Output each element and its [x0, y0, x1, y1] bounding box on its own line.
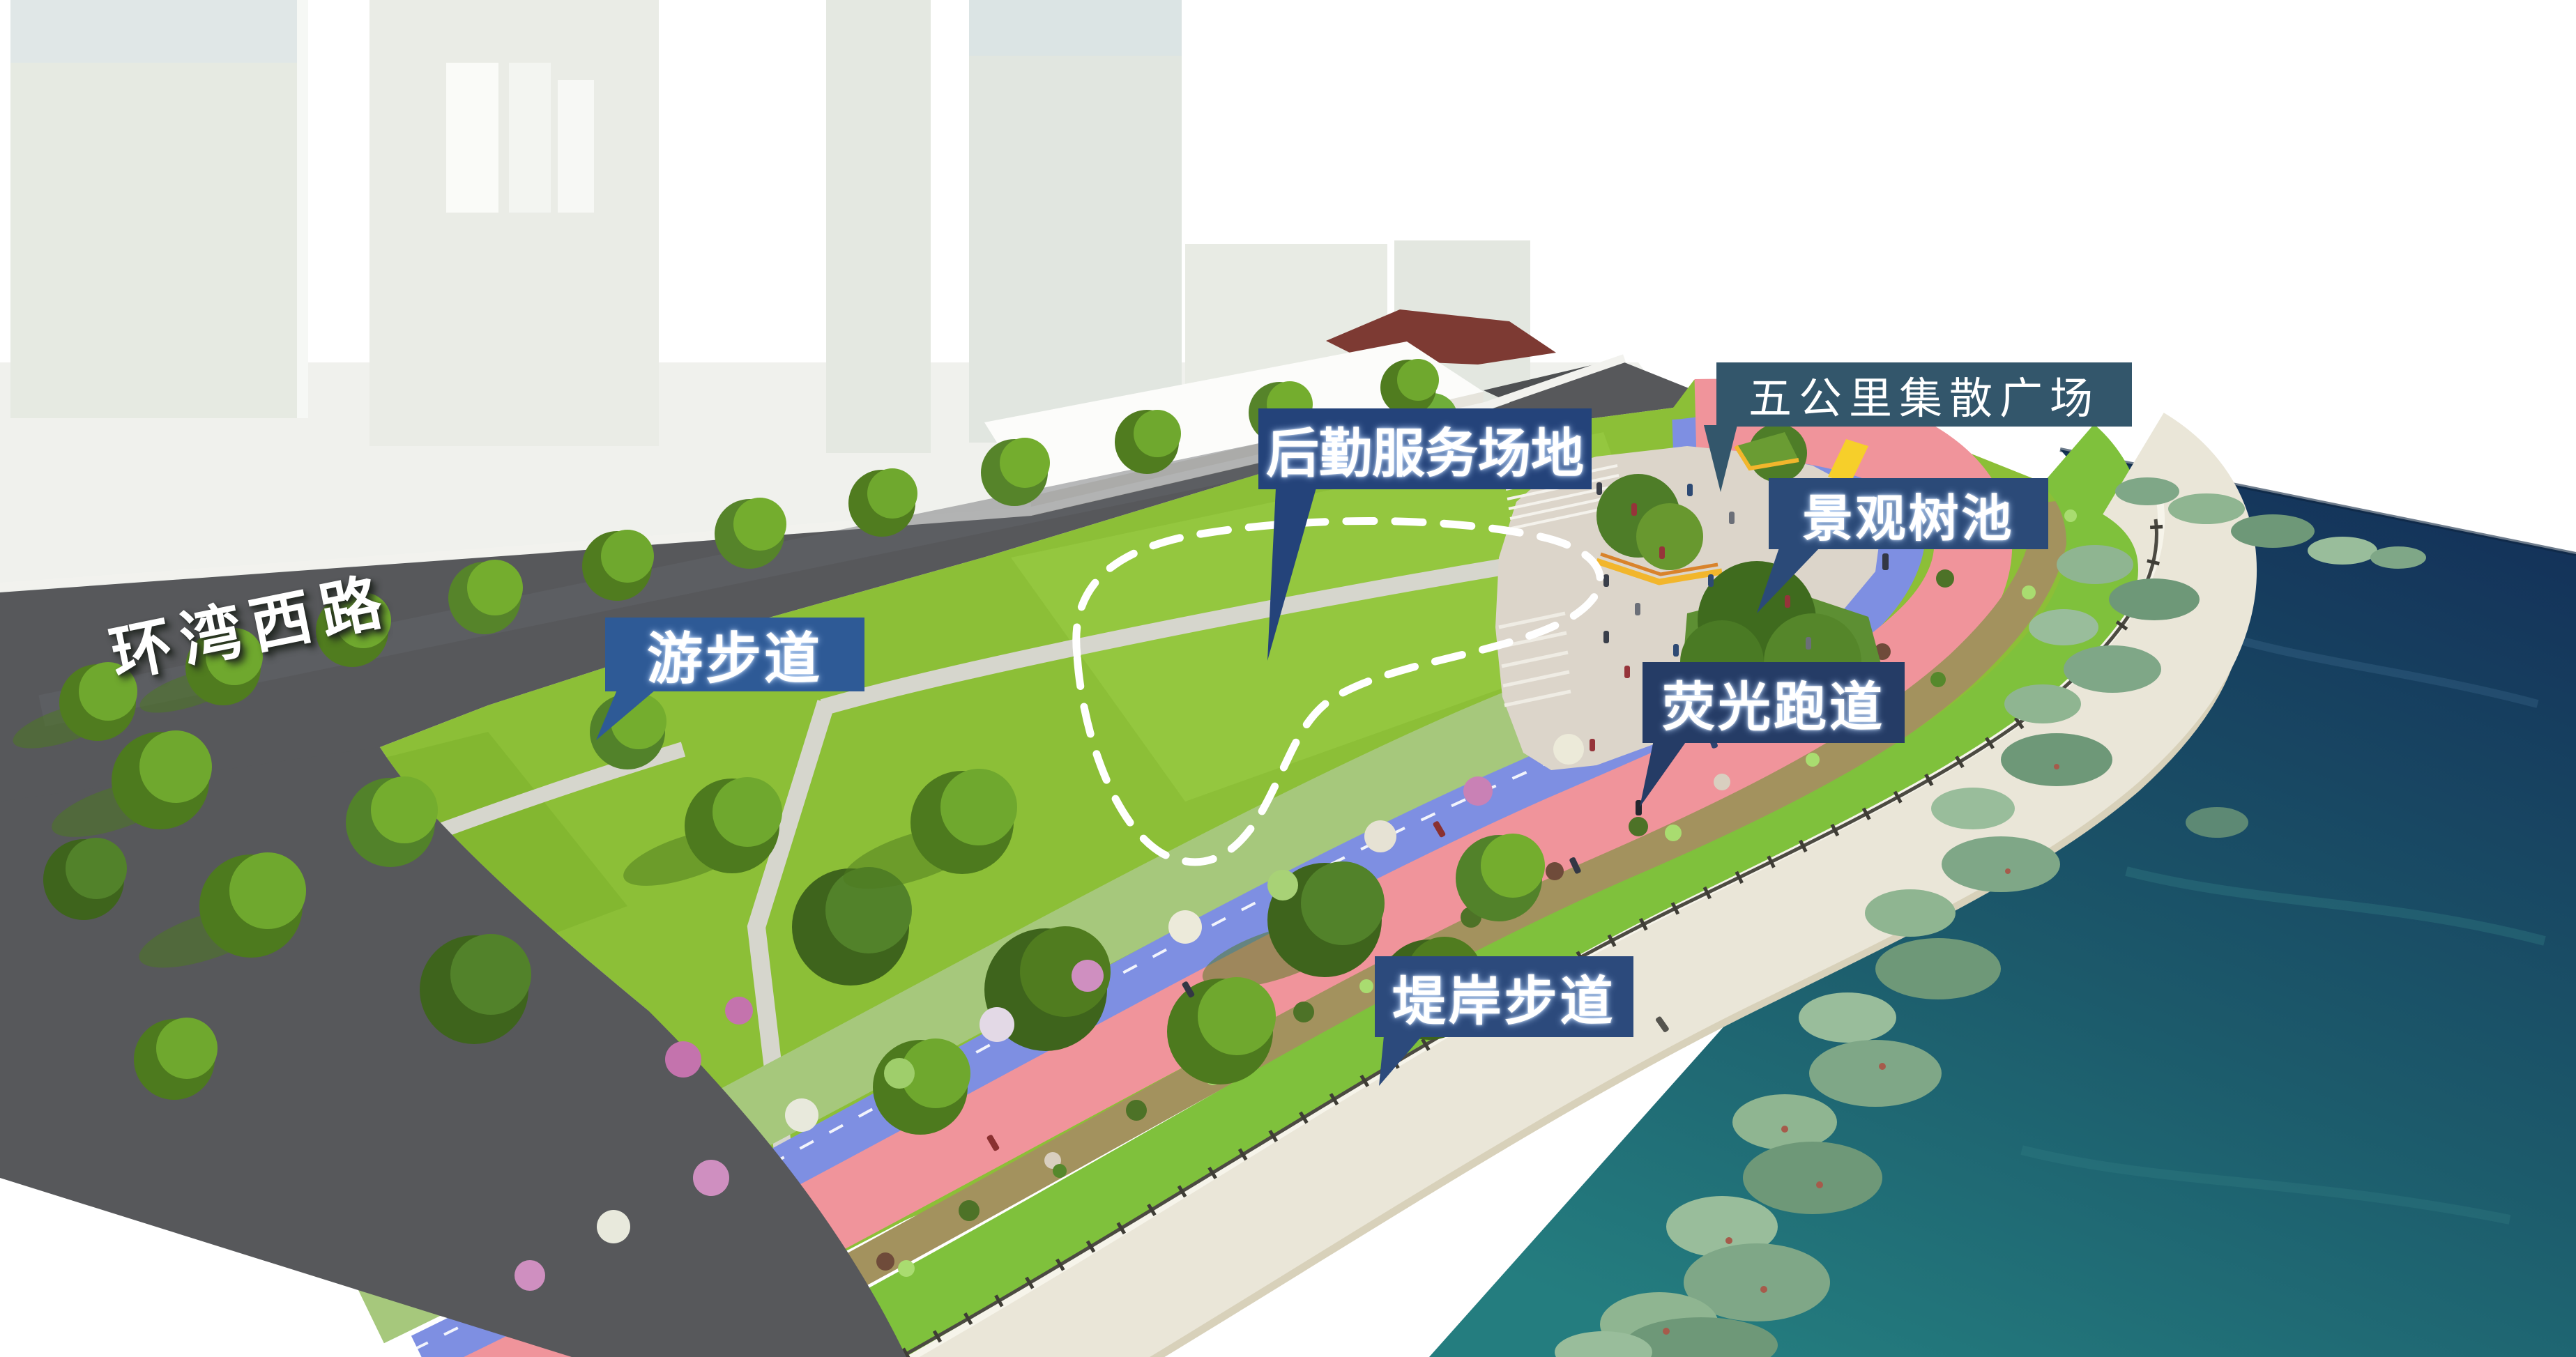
callout-walking-path: 游步道: [605, 618, 864, 691]
scene-canvas: [0, 0, 2576, 1357]
callout-glow-track: 荧光跑道: [1643, 662, 1905, 743]
callout-embankment-walk: 堤岸步道: [1375, 956, 1633, 1037]
park-rendering-scene: 环湾西路 后勤服务场地 五公里集散广场 景观树池 游步道 荧光跑道 堤岸步道: [0, 0, 2576, 1357]
callout-landscape-tree-pool: 景观树池: [1769, 478, 2048, 549]
callout-service-area: 后勤服务场地: [1258, 408, 1592, 489]
callout-5km-plaza: 五公里集散广场: [1716, 362, 2132, 427]
